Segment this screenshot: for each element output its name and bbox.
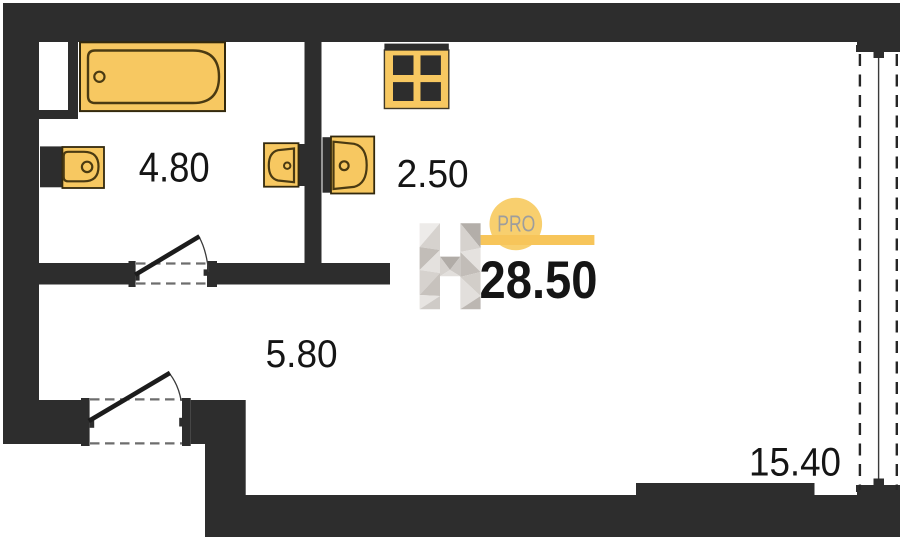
- svg-text:15.40: 15.40: [749, 440, 841, 484]
- svg-text:28.50: 28.50: [480, 251, 598, 310]
- svg-text:4.80: 4.80: [139, 144, 210, 191]
- svg-text:5.80: 5.80: [266, 333, 338, 376]
- svg-text:PRO: PRO: [497, 211, 535, 237]
- svg-text:2.50: 2.50: [397, 153, 469, 196]
